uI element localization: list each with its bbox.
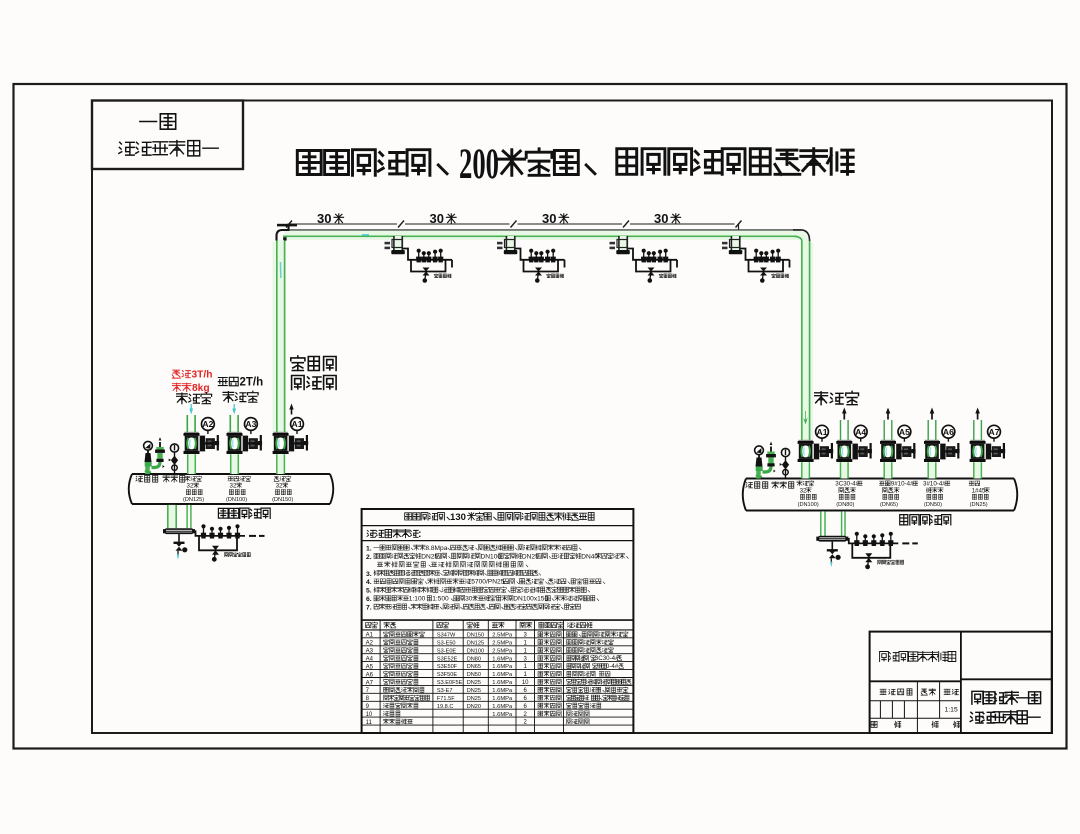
svg-text:30: 30	[654, 211, 668, 226]
svg-text:S3.E0F5E: S3.E0F5E	[437, 680, 463, 686]
svg-text:(DN100): (DN100)	[798, 502, 819, 508]
svg-text:A7: A7	[366, 680, 374, 686]
svg-text:2.5MPa: 2.5MPa	[492, 633, 513, 639]
svg-text:10: 10	[522, 680, 529, 686]
svg-text:S3-E50: S3-E50	[437, 640, 456, 646]
svg-text:2T/h: 2T/h	[240, 377, 264, 389]
svg-text:1.6MPa: 1.6MPa	[492, 672, 513, 678]
svg-text:4.: 4.	[366, 579, 372, 586]
svg-text:F71.5F: F71.5F	[437, 696, 455, 702]
svg-text:7.: 7.	[366, 605, 372, 612]
svg-text:1:15: 1:15	[945, 707, 958, 714]
svg-text:A3: A3	[245, 419, 256, 429]
svg-text:1.: 1.	[366, 545, 372, 552]
svg-text:3C30-4#: 3C30-4#	[835, 481, 859, 488]
svg-text:DN20: DN20	[467, 704, 481, 710]
svg-text:9#10-4#: 9#10-4#	[891, 481, 914, 488]
svg-text::: :	[418, 529, 421, 540]
svg-text:(DN100): (DN100)	[226, 497, 247, 503]
svg-text:DN100: DN100	[467, 648, 484, 654]
svg-text:A5: A5	[366, 664, 374, 670]
svg-text:S3E52E: S3E52E	[437, 656, 458, 662]
svg-text:(DN80): (DN80)	[836, 502, 854, 508]
svg-text:2.5MPa: 2.5MPa	[492, 648, 513, 654]
svg-text:3C30-4#: 3C30-4#	[595, 655, 619, 662]
svg-text:A7: A7	[989, 427, 1000, 437]
svg-text:DN65: DN65	[467, 664, 481, 670]
svg-text:0-4#: 0-4#	[606, 663, 619, 670]
svg-text:1.6MPa: 1.6MPa	[492, 680, 513, 686]
svg-text:A5: A5	[899, 427, 910, 437]
svg-text:5700/PN25: 5700/PN25	[471, 579, 504, 586]
svg-text:6.: 6.	[366, 596, 372, 603]
svg-text:30: 30	[317, 211, 331, 226]
svg-text:3.: 3.	[366, 571, 372, 578]
svg-text:A2: A2	[366, 641, 374, 647]
svg-text:DN25: DN25	[467, 688, 481, 694]
svg-text:3T/h: 3T/h	[192, 370, 213, 381]
svg-text:A4: A4	[366, 657, 374, 663]
svg-text:10: 10	[366, 712, 373, 718]
svg-text:(DN150): (DN150)	[272, 497, 293, 503]
svg-text:5.: 5.	[366, 588, 372, 595]
svg-text:1.6MPa: 1.6MPa	[492, 664, 513, 670]
svg-text:DN100x150: DN100x150	[513, 596, 548, 603]
svg-text:2.: 2.	[366, 554, 372, 561]
svg-text:30: 30	[430, 211, 444, 226]
svg-text:A6: A6	[943, 427, 954, 437]
svg-text:1:100: 1:100	[409, 596, 426, 603]
svg-text:DN80: DN80	[467, 656, 481, 662]
svg-text:A6: A6	[366, 672, 374, 678]
svg-text:A1: A1	[817, 427, 828, 437]
svg-text:S347W: S347W	[437, 633, 456, 639]
svg-text:32: 32	[800, 487, 807, 494]
svg-text:30: 30	[542, 211, 556, 226]
svg-text:3#10-4#: 3#10-4#	[923, 481, 946, 488]
svg-text:1.6MPa: 1.6MPa	[492, 656, 513, 662]
svg-text:(DN125): (DN125)	[183, 497, 204, 503]
svg-text:DN25: DN25	[467, 680, 481, 686]
svg-text:A3: A3	[366, 649, 374, 655]
svg-text:DN50: DN50	[467, 672, 481, 678]
svg-text:30: 30	[465, 596, 473, 603]
svg-text:8kg: 8kg	[192, 383, 210, 394]
svg-text:S3F50E: S3F50E	[437, 672, 457, 678]
svg-text:S3-E7: S3-E7	[437, 688, 453, 694]
svg-text:32: 32	[276, 483, 283, 490]
svg-text:1.6MPa: 1.6MPa	[492, 704, 513, 710]
svg-text:(DN65): (DN65)	[880, 502, 898, 508]
svg-text:1.6MPa: 1.6MPa	[492, 712, 513, 718]
svg-text:(DN50): (DN50)	[924, 502, 942, 508]
svg-text:2.5MPa: 2.5MPa	[492, 640, 513, 646]
svg-text:S3E50F: S3E50F	[437, 664, 458, 670]
svg-text:A1: A1	[366, 633, 374, 639]
svg-text:1.6MPa: 1.6MPa	[492, 688, 513, 694]
svg-text:32: 32	[230, 483, 237, 490]
svg-text:DN100: DN100	[481, 553, 502, 560]
svg-text:(DN25): (DN25)	[970, 502, 988, 508]
svg-text:1.6MPa: 1.6MPa	[492, 696, 513, 702]
svg-text:A4: A4	[855, 427, 866, 437]
svg-text:DN25: DN25	[467, 696, 481, 702]
svg-text:11: 11	[366, 720, 373, 726]
svg-text:DN40: DN40	[581, 553, 598, 560]
svg-text:DN25: DN25	[522, 553, 539, 560]
svg-text:32: 32	[187, 483, 194, 490]
svg-text:DN150: DN150	[467, 633, 484, 639]
svg-text:A1: A1	[292, 419, 303, 429]
svg-text:A2: A2	[202, 419, 213, 429]
svg-text:S3-E0E: S3-E0E	[437, 648, 457, 654]
svg-text:1:500: 1:500	[432, 596, 449, 603]
svg-text:8.8Mpa: 8.8Mpa	[425, 545, 447, 552]
svg-text:1#45: 1#45	[972, 487, 986, 494]
svg-text:DN25: DN25	[421, 553, 438, 560]
svg-text:DN125: DN125	[467, 640, 484, 646]
svg-text:200: 200	[459, 140, 499, 188]
svg-text:130: 130	[450, 512, 466, 523]
svg-text:19.8.C: 19.8.C	[437, 704, 453, 710]
